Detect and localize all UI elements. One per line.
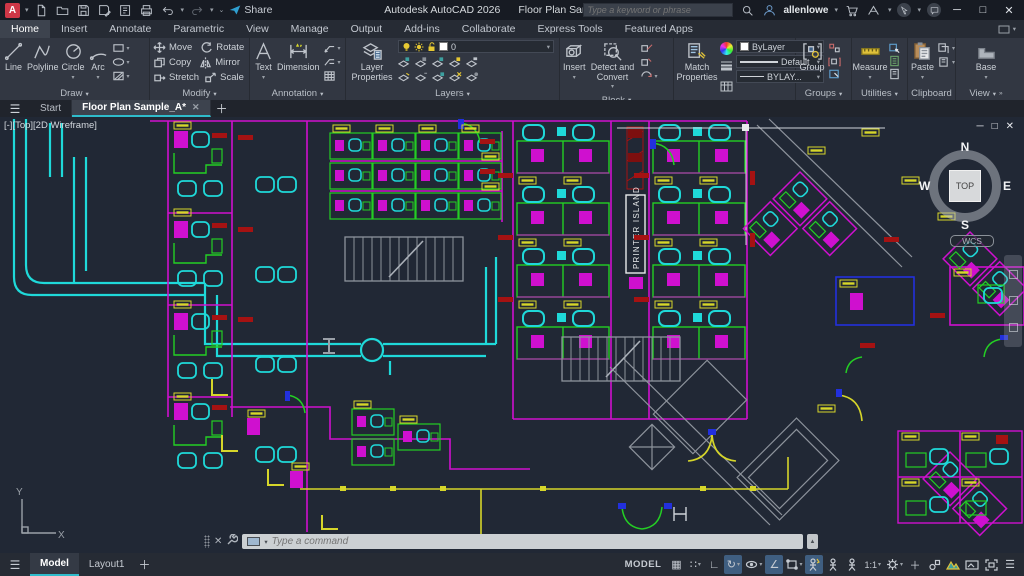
tab-view[interactable]: View — [235, 20, 280, 38]
duct-lines — [14, 119, 496, 375]
customization-menu-icon[interactable]: ☰ — [1001, 555, 1019, 574]
recent-commands-icon[interactable] — [247, 537, 260, 546]
layer-freeze-icon[interactable] — [432, 56, 445, 68]
command-history-toggle-icon[interactable]: ▲ — [807, 534, 818, 549]
copy-button[interactable]: Copy — [153, 55, 191, 70]
match-properties-button[interactable]: Match Properties — [677, 40, 717, 82]
layer-off-other-icon[interactable] — [466, 71, 479, 83]
layout1-tab[interactable]: Layout1 — [79, 553, 135, 576]
share-button[interactable]: Share — [229, 4, 272, 16]
layer-freeze-other-icon[interactable] — [449, 71, 462, 83]
app-menu-caret-icon[interactable]: ▾ — [25, 6, 29, 14]
viewport-window-controls: ─ □ ✕ — [976, 121, 1014, 132]
quick-select-icon[interactable] — [888, 42, 901, 54]
red-labels — [238, 135, 945, 348]
move-button[interactable]: Move — [153, 40, 192, 55]
panel-label-view[interactable]: View▾» — [956, 87, 1016, 100]
wcs-menu[interactable]: WCS — [950, 235, 994, 247]
navigation-bar[interactable] — [1004, 255, 1022, 347]
table-icon[interactable] — [323, 70, 341, 82]
tab-manage[interactable]: Manage — [280, 20, 340, 38]
search-input[interactable] — [587, 5, 729, 15]
file-tab-bar: ☰ Start Floor Plan Sample_A*✕ ＋ — [0, 100, 1024, 117]
graphics-performance-icon[interactable] — [944, 555, 962, 574]
quick-calc-icon[interactable] — [888, 55, 901, 67]
tab-featured-apps[interactable]: Featured Apps — [614, 20, 704, 38]
panel-block: Insert▾ Detect and Convert▾ ▾ Block▾ — [560, 38, 674, 100]
orbit-tool-icon[interactable] — [1009, 323, 1018, 332]
arc-button[interactable]: Arc▾ — [88, 40, 109, 83]
command-line-grip[interactable] — [204, 535, 210, 548]
export-icon[interactable] — [118, 3, 134, 18]
command-input-field[interactable]: ▾ — [242, 534, 803, 549]
block-define-attribute-icon[interactable] — [640, 56, 658, 68]
viewcube-north[interactable]: N — [961, 140, 970, 154]
help-icon[interactable] — [897, 3, 911, 17]
plot-style-icon[interactable] — [720, 79, 733, 97]
viewport-close-icon[interactable]: ✕ — [1006, 121, 1014, 132]
search-collapse-icon[interactable]: ◂ — [574, 6, 578, 14]
new-layout-button[interactable]: ＋ — [134, 553, 154, 576]
panel-groups: Group Groups▾ — [796, 38, 852, 100]
rotate-button[interactable]: Rotate — [200, 40, 244, 55]
printer-island: PRINTER ISLAND — [626, 127, 645, 289]
ucs-x-label: X — [58, 530, 65, 541]
print-icon[interactable] — [139, 3, 155, 18]
layer-properties-button[interactable]: Layer Properties — [349, 40, 395, 82]
grid-display-toggle[interactable]: ▦ — [667, 555, 685, 574]
undo-caret-icon[interactable]: ▾ — [181, 6, 185, 14]
new-file-icon[interactable] — [34, 3, 50, 18]
mirror-button[interactable]: Mirror — [199, 55, 240, 70]
viewcube[interactable]: N S W E TOP — [922, 143, 1008, 229]
lineweight-icon[interactable] — [720, 58, 733, 76]
command-line-customize-icon[interactable] — [226, 533, 238, 551]
search-icon[interactable] — [739, 3, 755, 18]
zoom-tool-icon[interactable] — [1009, 296, 1018, 305]
object-snap-toggle[interactable]: ▾ — [784, 555, 804, 574]
panel-modify: Move Rotate Copy Mirror Stretch Scale Mo… — [150, 38, 250, 100]
panel-properties: Match Properties ByLayer▾ Default▾ BYLAY… — [674, 38, 796, 100]
annotation-monitor-icon[interactable]: ＋ — [906, 555, 924, 574]
measure-button[interactable]: Measure▾ — [855, 40, 885, 83]
viewport-minimize-icon[interactable]: ─ — [976, 121, 983, 132]
viewport-controls-label[interactable]: [-][Top][2D Wireframe] — [4, 120, 97, 131]
layer-make-current-icon[interactable] — [466, 56, 479, 68]
cut-clip-icon[interactable]: ▾ — [937, 56, 955, 68]
command-input[interactable] — [272, 536, 798, 547]
annotation-visibility-toggle[interactable] — [805, 555, 823, 574]
search-box[interactable] — [583, 3, 733, 17]
tab-insert[interactable]: Insert — [50, 20, 98, 38]
autodesk-logo-icon[interactable] — [866, 3, 882, 18]
tab-home[interactable]: Home — [0, 20, 50, 38]
stretch-button[interactable]: Stretch — [153, 70, 199, 85]
layout-tab-menu-icon[interactable]: ☰ — [0, 553, 30, 576]
ribbon: Line Polyline Circle▾ Arc▾ ▾ ▾ ▾ Draw▾ M… — [0, 38, 1024, 100]
tab-parametric[interactable]: Parametric — [162, 20, 235, 38]
layer-on-bulb-icon — [402, 42, 411, 52]
command-line[interactable]: ✕ ▾ ▲ — [204, 533, 818, 550]
printer-island-label: PRINTER ISLAND — [632, 186, 641, 269]
block-attribute-sync-icon[interactable]: ▾ — [640, 70, 658, 82]
panel-label-layers[interactable]: Layers▾ — [346, 87, 559, 100]
copy-clip-icon[interactable]: ▾ — [937, 42, 955, 54]
status-bar: ☰ Model Layout1 ＋ MODEL ▦ ∷▾ ∟ ↻▾ ▾ ∠ ▾ … — [0, 553, 1024, 576]
share-plane-icon — [229, 4, 241, 16]
id-point-icon[interactable] — [888, 68, 901, 80]
workspace-switching-gear-icon[interactable]: ▾ — [884, 555, 905, 574]
layer-previous-icon[interactable] — [415, 71, 428, 83]
ortho-mode-toggle[interactable]: ∟ — [705, 555, 723, 574]
viewcube-south[interactable]: S — [961, 218, 969, 232]
close-tab-icon[interactable]: ✕ — [192, 102, 200, 113]
viewcube-east[interactable]: E — [1003, 179, 1011, 193]
fullscreen-icon[interactable] — [982, 555, 1000, 574]
app-title: Autodesk AutoCAD 2026 — [384, 4, 500, 16]
layer-color-swatch — [439, 42, 448, 51]
autodesk-menu-caret-icon[interactable]: ▾ — [888, 6, 892, 14]
ellipse-tool-icon[interactable]: ▾ — [112, 56, 130, 68]
multileader-icon[interactable]: ▾ — [323, 56, 341, 68]
ribbon-display-toggle[interactable]: ▾ — [990, 20, 1024, 38]
layer-select[interactable]: 0 ▾ — [398, 40, 554, 53]
tab-output[interactable]: Output — [340, 20, 394, 38]
ucs-icon: Y X — [16, 487, 65, 541]
annotation-scale-button[interactable]: 1:1▾ — [862, 555, 883, 574]
rectangle-tool-icon[interactable]: ▾ — [112, 42, 130, 54]
hatch-tool-icon[interactable]: ▾ — [112, 70, 130, 82]
insert-block-button[interactable]: Insert▾ — [563, 40, 586, 83]
panel-annotation: Text▾ Dimension ▾ ▾ Annotation▾ — [250, 38, 346, 100]
title-bar: A ▾ ▾ ▾ ⌄ Share Autodesk AutoCAD 2026Flo… — [0, 0, 1024, 20]
maximize-button[interactable]: □ — [973, 4, 993, 16]
recent-commands-caret-icon[interactable]: ▾ — [264, 538, 267, 546]
ucs-y-label: Y — [16, 487, 23, 498]
panel-view: Base▾ View▾» — [956, 38, 1016, 100]
file-tab-menu-icon[interactable]: ☰ — [0, 100, 30, 117]
panel-label-annotation[interactable]: Annotation▾ — [250, 87, 345, 100]
tab-collaborate[interactable]: Collaborate — [451, 20, 527, 38]
model-paper-space-toggle[interactable]: MODEL — [620, 555, 667, 574]
cubicle-grid — [330, 133, 501, 465]
leader-icon[interactable]: ▾ — [323, 42, 341, 54]
color-wheel-icon[interactable] — [720, 42, 733, 55]
group-button[interactable]: Group — [799, 40, 825, 73]
tab-annotate[interactable]: Annotate — [98, 20, 162, 38]
base-view-button[interactable]: Base▾ — [971, 40, 1001, 83]
block-edit-icon[interactable] — [640, 42, 658, 54]
polar-tracking-toggle[interactable]: ↻▾ — [724, 555, 742, 574]
close-button[interactable]: ✕ — [999, 4, 1019, 17]
quick-access-customize-icon[interactable]: ⌄ — [219, 6, 225, 14]
panel-label-groups[interactable]: Groups▾ — [796, 87, 851, 100]
dimension-button[interactable]: Dimension — [277, 40, 320, 73]
layer-off-icon[interactable] — [398, 56, 411, 68]
right-rooms — [247, 285, 1008, 515]
new-drawing-tab-button[interactable]: ＋ — [211, 100, 233, 117]
snap-mode-toggle[interactable]: ∷▾ — [686, 555, 704, 574]
polyline-button[interactable]: Polyline — [27, 40, 59, 73]
viewcube-top-face[interactable]: TOP — [949, 170, 981, 202]
file-tab-drawing[interactable]: Floor Plan Sample_A*✕ — [72, 100, 210, 117]
group-edit-icon[interactable] — [828, 55, 841, 67]
viewcube-west[interactable]: W — [919, 179, 930, 193]
pan-tool-icon[interactable] — [1009, 270, 1018, 279]
panel-draw: Line Polyline Circle▾ Arc▾ ▾ ▾ ▾ Draw▾ — [0, 38, 150, 100]
share-label: Share — [244, 4, 272, 16]
save-as-icon[interactable] — [97, 3, 113, 18]
app-store-cart-icon[interactable] — [844, 3, 860, 18]
autocad-window: A ▾ ▾ ▾ ⌄ Share Autodesk AutoCAD 2026Flo… — [0, 0, 1024, 576]
layer-match-icon[interactable] — [398, 71, 411, 83]
tab-add-ins[interactable]: Add-ins — [393, 20, 451, 38]
layer-lock-icon[interactable] — [449, 56, 462, 68]
layer-isolate-icon[interactable] — [415, 56, 428, 68]
panel-label-modify[interactable]: Modify▾ — [150, 87, 249, 100]
user-name[interactable]: allenlowe — [783, 5, 828, 16]
annotation-autoscale-toggle[interactable] — [824, 555, 842, 574]
model-space-viewport[interactable]: PRINTER ISLAND — [0, 117, 1024, 553]
save-icon[interactable] — [76, 3, 92, 18]
layer-thaw-sun-icon — [414, 42, 424, 52]
ribbon-tab-bar: Home Insert Annotate Parametric View Man… — [0, 20, 1024, 38]
command-line-close-icon[interactable]: ✕ — [214, 536, 222, 547]
redo-caret-icon[interactable]: ▾ — [210, 6, 214, 14]
user-avatar-icon[interactable] — [761, 3, 777, 18]
clean-screen-icon[interactable] — [963, 555, 981, 574]
help-caret-icon[interactable]: ▾ — [917, 6, 921, 14]
scale-button[interactable]: Scale — [204, 70, 244, 85]
undo-icon[interactable] — [160, 3, 176, 18]
isodraft-toggle[interactable]: ▾ — [743, 555, 764, 574]
object-snap-tracking-toggle[interactable]: ∠ — [765, 555, 783, 574]
panel-label-utilities[interactable]: Utilities▾ — [852, 87, 907, 100]
floor-plan-drawing[interactable]: PRINTER ISLAND — [0, 117, 1024, 553]
group-selection-icon[interactable] — [828, 68, 841, 80]
panel-label-clipboard[interactable]: Clipboard — [908, 87, 955, 100]
isolate-objects-icon[interactable] — [925, 555, 943, 574]
office-row — [174, 131, 296, 468]
user-menu-caret-icon[interactable]: ▾ — [834, 6, 838, 14]
viewport-restore-icon[interactable]: □ — [992, 121, 998, 132]
panel-label-draw[interactable]: Draw▾ — [0, 87, 149, 100]
open-file-icon[interactable] — [55, 3, 71, 18]
paste-button[interactable]: Paste▾ — [911, 40, 934, 83]
circle-button[interactable]: Circle▾ — [62, 40, 85, 83]
detect-convert-button[interactable]: Detect and Convert▾ — [589, 40, 637, 93]
line-button[interactable]: Line — [3, 40, 24, 73]
redo-icon[interactable] — [189, 3, 205, 18]
layer-unlock-icon — [427, 42, 436, 52]
model-tab[interactable]: Model — [30, 553, 79, 576]
tab-express-tools[interactable]: Express Tools — [526, 20, 613, 38]
assistant-chat-icon[interactable] — [927, 3, 941, 17]
panel-utilities: Measure▾ Utilities▾ — [852, 38, 908, 100]
panel-clipboard: Paste▾ ▾ ▾ Clipboard — [908, 38, 956, 100]
text-button[interactable]: Text▾ — [253, 40, 274, 83]
current-layer-name: 0 — [451, 42, 456, 52]
file-tab-start[interactable]: Start — [30, 100, 72, 117]
minimize-button[interactable]: ─ — [947, 4, 967, 16]
layer-walk-icon[interactable] — [432, 71, 445, 83]
panel-layers: Layer Properties 0 ▾ — [346, 38, 560, 100]
app-menu-button[interactable]: A — [5, 3, 20, 18]
annotation-scale-sync-toggle[interactable] — [843, 555, 861, 574]
ungroup-icon[interactable] — [828, 42, 841, 54]
